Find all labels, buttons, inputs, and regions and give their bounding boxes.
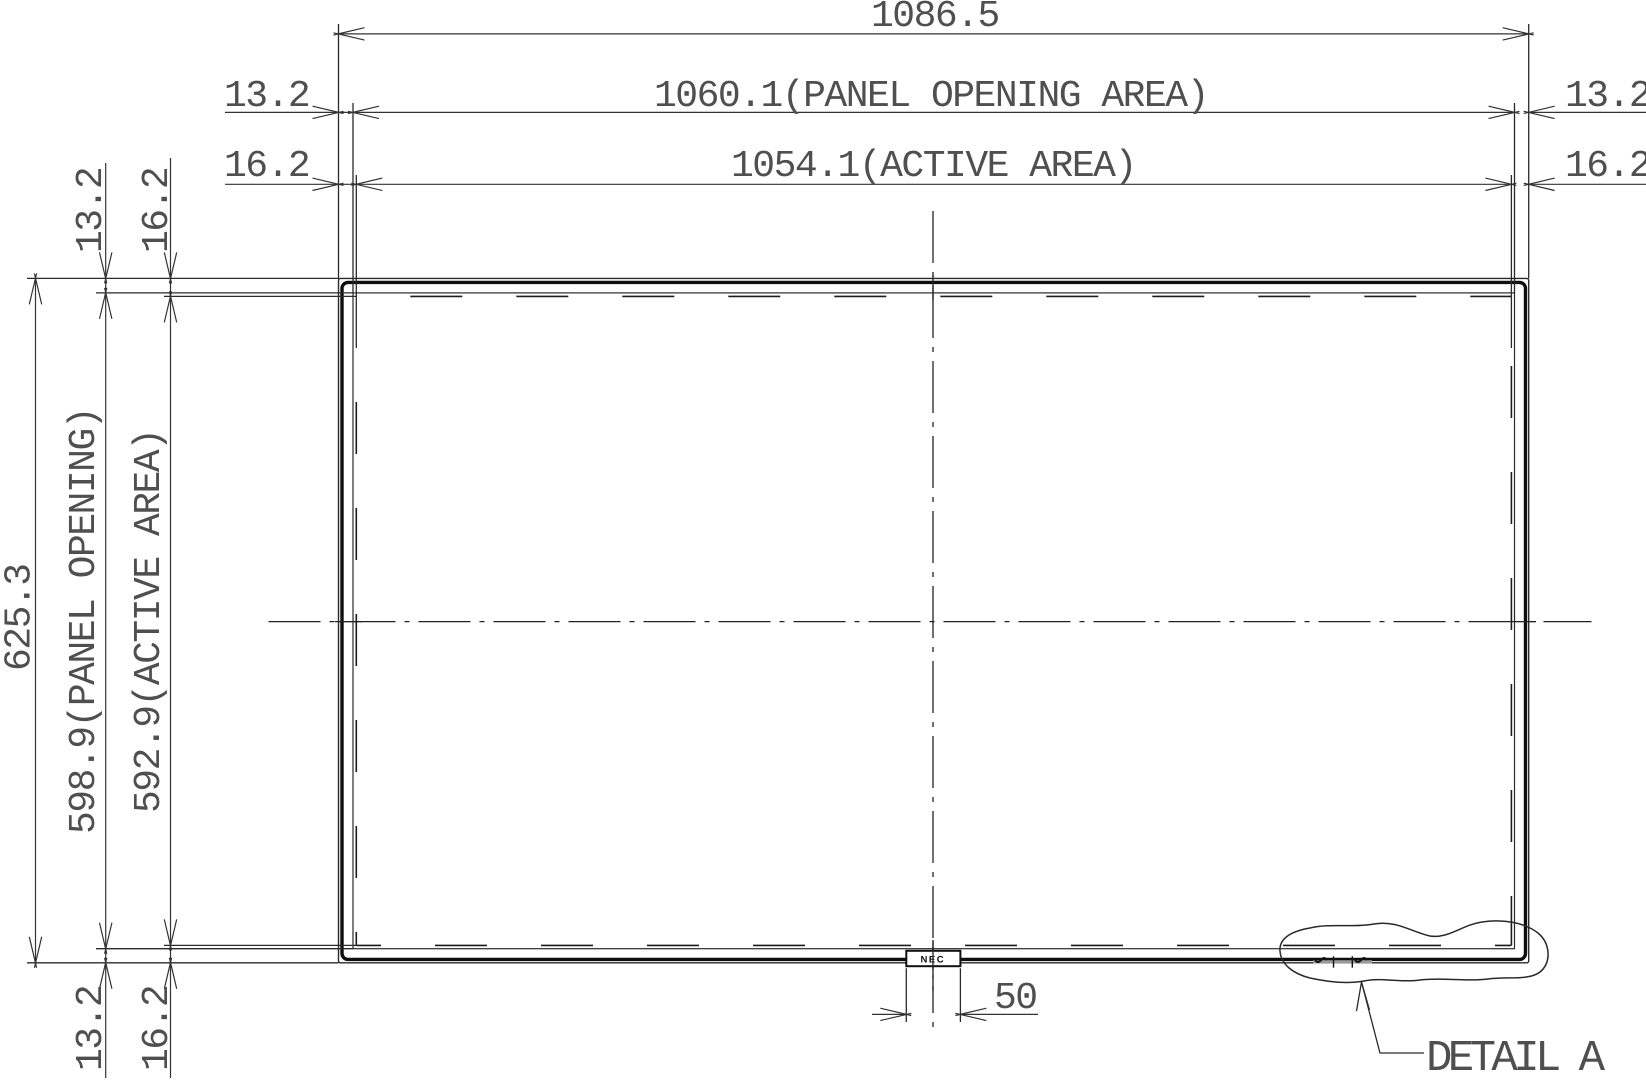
svg-text:50: 50	[994, 977, 1037, 1020]
svg-text:592.9(ACTIVE AREA): 592.9(ACTIVE AREA)	[128, 430, 171, 813]
svg-text:598.9(PANEL OPENING): 598.9(PANEL OPENING)	[63, 408, 106, 834]
svg-text:DETAIL A: DETAIL A	[1426, 1034, 1606, 1080]
svg-text:16.2: 16.2	[224, 145, 309, 188]
svg-text:13.2: 13.2	[1565, 75, 1646, 118]
svg-text:13.2: 13.2	[224, 75, 309, 118]
svg-text:1086.5: 1086.5	[871, 0, 999, 38]
svg-text:13.2: 13.2	[70, 986, 113, 1071]
svg-text:16.2: 16.2	[136, 986, 179, 1071]
svg-text:16.2: 16.2	[1565, 145, 1646, 188]
svg-text:625.3: 625.3	[0, 564, 42, 671]
svg-text:13.2: 13.2	[70, 168, 113, 253]
svg-text:16.2: 16.2	[136, 168, 179, 253]
svg-text:1054.1(ACTIVE AREA): 1054.1(ACTIVE AREA)	[731, 145, 1136, 188]
svg-text:1060.1(PANEL OPENING AREA): 1060.1(PANEL OPENING AREA)	[654, 75, 1208, 118]
